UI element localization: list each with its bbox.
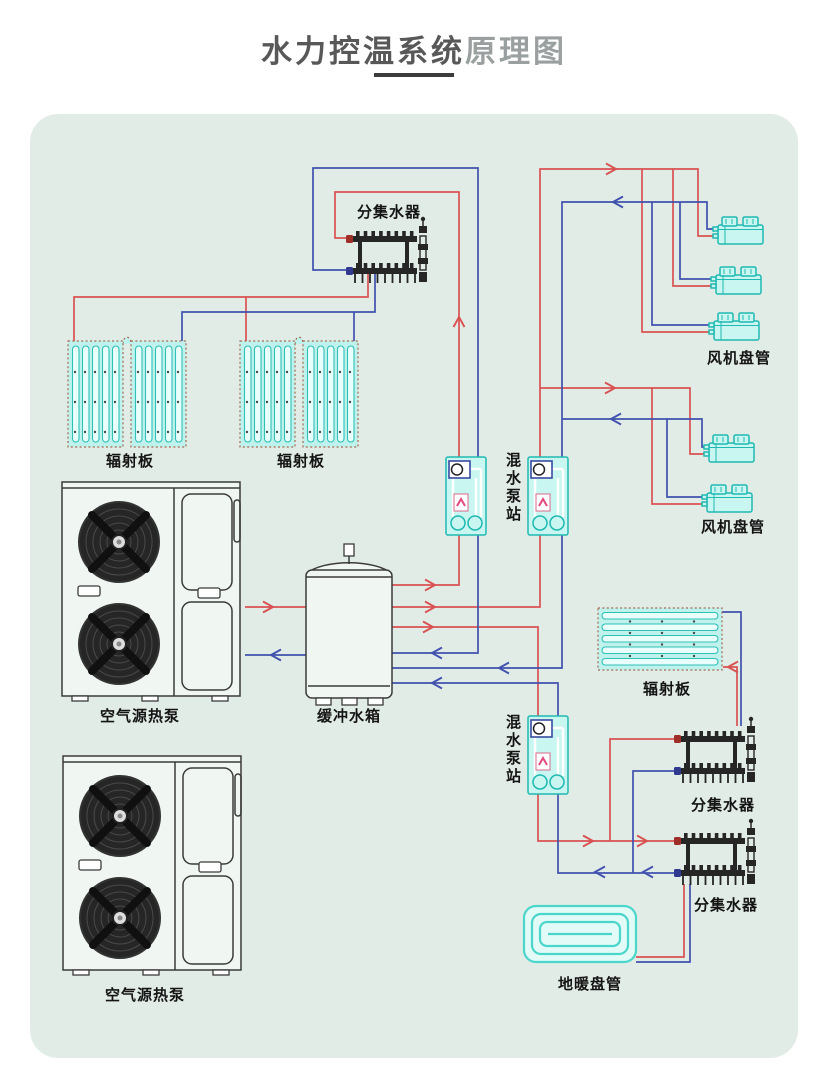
label-radiant-panel-right: 辐射板 bbox=[643, 678, 691, 699]
fan-coil-unit-2 bbox=[711, 267, 761, 294]
manifold-right-lower-drawing bbox=[674, 819, 756, 885]
mixing-pump-station-3-drawing bbox=[528, 716, 568, 794]
fan-coil-unit-1 bbox=[713, 217, 763, 244]
buffer-tank-drawing bbox=[306, 544, 392, 705]
label-mixing-station-1: 混水泵站 bbox=[503, 452, 524, 524]
label-fan-coil-group-1: 风机盘管 bbox=[707, 347, 771, 368]
page: 水力控温系统原理图 bbox=[0, 0, 828, 1080]
heat-pump-1-drawing bbox=[62, 482, 240, 701]
radiant-panel-right-drawing bbox=[598, 608, 722, 670]
manifold-right-upper-drawing bbox=[674, 717, 756, 783]
label-manifold-right-upper: 分集水器 bbox=[691, 794, 755, 815]
fan-coil-unit-4 bbox=[704, 435, 754, 462]
return-pipes bbox=[182, 168, 741, 962]
label-manifold-right-lower: 分集水器 bbox=[694, 894, 758, 915]
label-radiant-panel-left-1: 辐射板 bbox=[106, 450, 154, 471]
fan-coil-unit-5 bbox=[702, 485, 752, 512]
mixing-pump-station-1-drawing bbox=[446, 457, 486, 535]
label-fan-coil-group-2: 风机盘管 bbox=[701, 516, 765, 537]
label-radiant-panel-left-2: 辐射板 bbox=[277, 450, 325, 471]
radiant-panel-left-1-drawing bbox=[68, 337, 186, 447]
label-mixing-station-2: 混水泵站 bbox=[503, 714, 524, 786]
label-buffer-tank: 缓冲水箱 bbox=[317, 705, 381, 726]
label-floor-heating-coil: 地暖盘管 bbox=[558, 973, 622, 994]
schematic-drawing bbox=[0, 0, 828, 1080]
heat-pump-2-drawing bbox=[63, 756, 241, 975]
label-heat-pump-2: 空气源热泵 bbox=[105, 984, 185, 1005]
radiant-panel-left-2-drawing bbox=[240, 337, 358, 447]
mixing-pump-station-2-drawing bbox=[528, 457, 568, 535]
label-manifold-top: 分集水器 bbox=[357, 201, 421, 222]
manifold-top-drawing bbox=[346, 217, 428, 283]
fan-coil-unit-3 bbox=[709, 313, 759, 340]
label-heat-pump-1: 空气源热泵 bbox=[100, 705, 180, 726]
floor-heating-coil-drawing bbox=[524, 906, 636, 962]
